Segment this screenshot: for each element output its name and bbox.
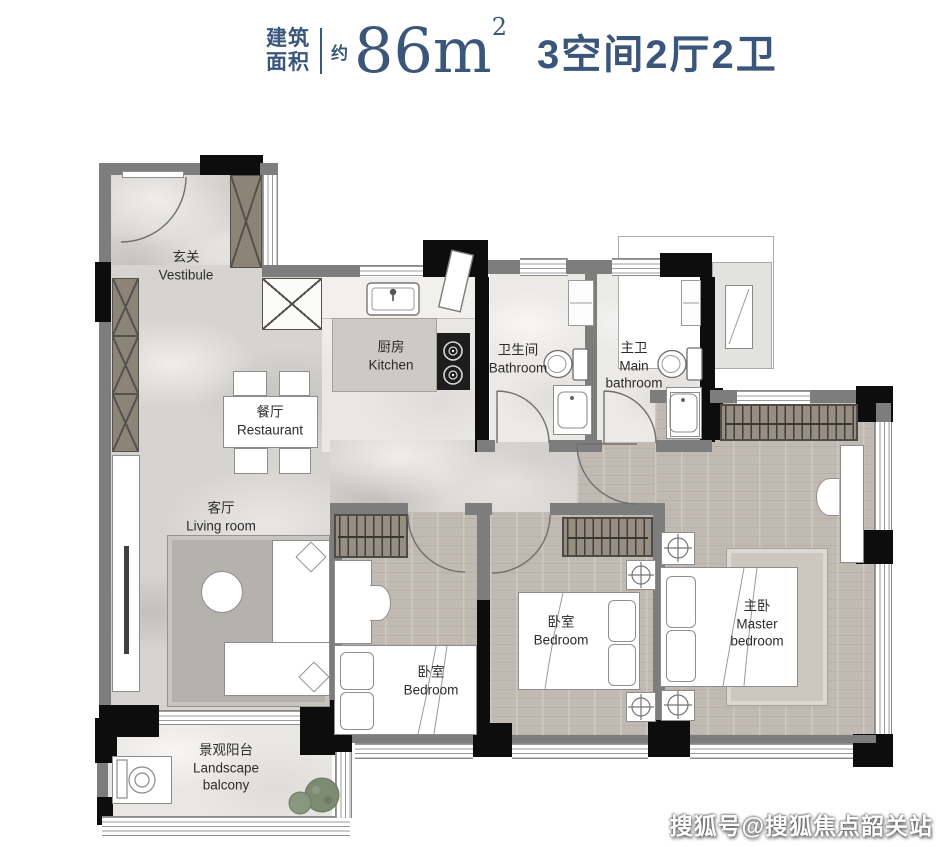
fridge-cabinet xyxy=(262,278,322,330)
dining-chair[interactable] xyxy=(279,371,310,396)
column-bath-ne xyxy=(660,253,712,277)
label-zh: 玄关 xyxy=(141,248,231,266)
master-door-leaf[interactable] xyxy=(670,392,700,437)
wall-master-east-cap xyxy=(876,403,891,422)
entry-closet xyxy=(230,175,262,268)
pillow xyxy=(666,576,696,628)
pillow xyxy=(608,600,636,642)
bedroom-b-wardrobe xyxy=(562,517,653,557)
kitchen-counter xyxy=(322,277,475,319)
label-master-bedroom: 主卧 Master bedroom xyxy=(717,598,797,651)
balcony-railing-east xyxy=(335,752,352,818)
master-wardrobe xyxy=(720,404,858,441)
label-en: Living room xyxy=(171,517,271,535)
bedroom-a-desk xyxy=(334,560,372,644)
master-nightstand xyxy=(661,690,695,721)
coffee-table xyxy=(201,571,243,613)
watermark: 搜狐号@搜狐焦点韶关站 xyxy=(670,807,933,841)
column-bedroom-divider xyxy=(477,600,490,737)
floor-plan-page: 建筑 面积 约 86m 2 3空间2厅2卫 xyxy=(0,0,939,847)
pillow xyxy=(666,630,696,682)
pillow xyxy=(340,692,374,730)
entry-door-leaf[interactable] xyxy=(122,171,184,178)
label-zh: 餐厅 xyxy=(225,403,315,421)
label-zh: 卫生间 xyxy=(477,341,559,359)
pillow xyxy=(608,644,636,686)
area-label-line2: 面积 xyxy=(266,51,310,75)
window-master-east-b xyxy=(874,564,892,734)
wall-bath-south-a xyxy=(477,440,495,452)
bathroom-vanity xyxy=(553,385,592,435)
master-desk-chair[interactable] xyxy=(816,478,839,516)
bedroom-b-nightstand xyxy=(626,692,656,722)
window-bedroom-b-south xyxy=(512,743,648,759)
label-dining: 餐厅 Restaurant xyxy=(225,403,315,438)
shoe-cabinet xyxy=(112,278,139,452)
master-desk xyxy=(840,445,864,563)
label-zh: 主卧 xyxy=(717,598,797,616)
label-kitchen: 厨房 Kitchen xyxy=(351,338,431,373)
bedroom-a-wardrobe xyxy=(334,514,408,558)
dining-chair[interactable] xyxy=(234,448,268,474)
label-en: Main bathroom xyxy=(592,357,676,392)
layout-text: 3空间2厅2卫 xyxy=(537,22,778,80)
label-en: Bedroom xyxy=(391,681,471,699)
label-en: Bedroom xyxy=(521,631,601,649)
label-bedroom-a: 卧室 Bedroom xyxy=(391,663,471,698)
ac-unit xyxy=(725,285,753,349)
master-nightstand xyxy=(661,532,695,565)
column-kitchen-north xyxy=(423,240,488,277)
label-zh: 卧室 xyxy=(391,663,471,681)
label-balcony: 景观阳台 Landscape balcony xyxy=(180,742,272,795)
label-living: 客厅 Living room xyxy=(171,499,271,534)
balcony-railing-south xyxy=(102,816,350,836)
tv xyxy=(124,546,129,654)
wall-left xyxy=(99,163,111,737)
label-en: Bathroom xyxy=(477,359,559,377)
area-label: 建筑 面积 xyxy=(266,27,310,74)
column-top-vestibule xyxy=(200,155,263,175)
window-master-north xyxy=(737,390,810,405)
pillow xyxy=(340,652,374,690)
window-bathroom xyxy=(520,258,568,276)
label-zh: 客厅 xyxy=(171,499,271,517)
stove xyxy=(437,333,470,390)
label-main-bathroom: 主卫 Main bathroom xyxy=(592,340,676,393)
column-left xyxy=(95,262,111,322)
window-main-bathroom xyxy=(612,258,662,276)
label-en: Landscape balcony xyxy=(180,759,272,794)
title-divider xyxy=(320,28,322,74)
window-vestibule-east xyxy=(262,175,278,268)
window-master-east-a xyxy=(874,422,892,532)
wall-bedrooms-north-c xyxy=(550,503,665,515)
balcony-sliding-door[interactable] xyxy=(159,710,301,725)
label-bathroom: 卫生间 Bathroom xyxy=(477,341,559,376)
area-exponent: 2 xyxy=(492,13,507,41)
label-zh: 景观阳台 xyxy=(180,742,272,760)
column-south-b xyxy=(473,723,512,757)
area-value: 86m xyxy=(354,20,492,82)
wall-vestibule-east-cap xyxy=(260,163,278,175)
column-south-c xyxy=(648,720,690,757)
label-zh: 卧室 xyxy=(521,613,601,631)
window-master-south xyxy=(690,743,853,759)
dining-chair[interactable] xyxy=(279,448,311,474)
label-zh: 厨房 xyxy=(351,338,431,356)
hallway-marble xyxy=(330,440,577,512)
approx-label: 约 xyxy=(331,39,348,64)
label-en: Master bedroom xyxy=(717,615,797,650)
pipe-shaft-east xyxy=(681,280,701,326)
wall-kitchen-north xyxy=(262,265,362,277)
bedroom-b-nightstand xyxy=(626,560,656,590)
wall-bath-south-c xyxy=(656,440,712,452)
area-label-line1: 建筑 xyxy=(266,27,310,51)
wall-bath-south-b xyxy=(549,440,602,452)
dining-chair[interactable] xyxy=(233,371,267,396)
label-vestibule: 玄关 Vestibule xyxy=(141,248,231,283)
label-en: Kitchen xyxy=(351,356,431,374)
wall-bath-north-a xyxy=(488,260,522,274)
label-en: Vestibule xyxy=(141,266,231,284)
label-en: Restaurant xyxy=(225,421,315,439)
plan-title: 建筑 面积 约 86m 2 3空间2厅2卫 xyxy=(266,14,778,88)
pipe-shaft-center xyxy=(568,280,594,326)
label-zh: 主卫 xyxy=(592,340,676,358)
window-bedroom-a-south xyxy=(355,743,473,759)
washing-machine xyxy=(112,756,172,804)
label-bedroom-b: 卧室 Bedroom xyxy=(521,613,601,648)
